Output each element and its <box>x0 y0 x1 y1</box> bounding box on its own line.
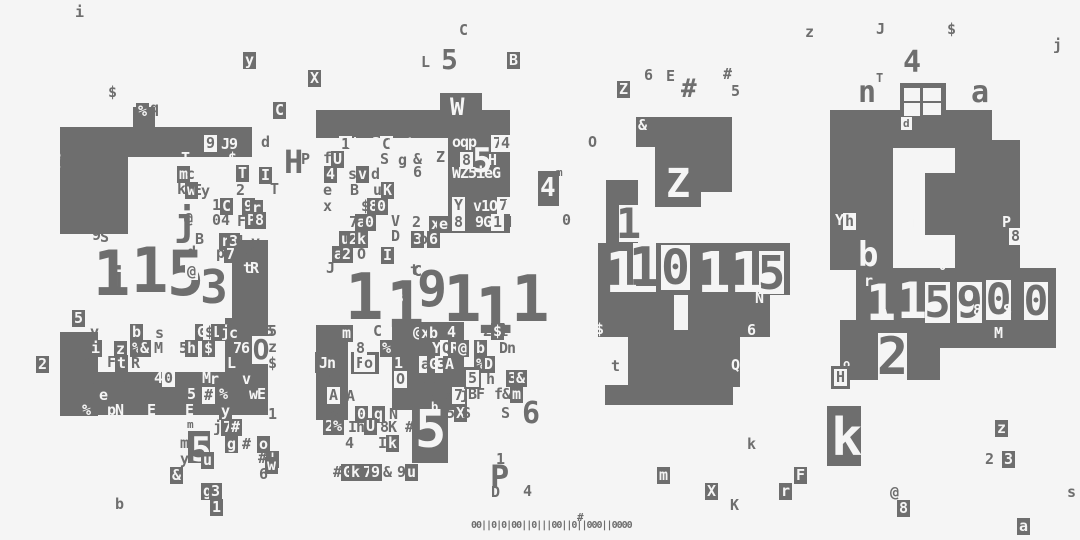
noise-char: C <box>413 264 422 279</box>
noise-char: x <box>323 199 332 214</box>
noise-char: t <box>329 372 338 387</box>
noise-char: # <box>681 76 697 102</box>
noise-char: 2 <box>340 246 353 263</box>
noise-char: w <box>265 457 278 474</box>
noise-char: 6 <box>747 323 756 338</box>
noise-char: 1 <box>443 371 452 386</box>
noise-char: % <box>380 340 393 357</box>
noise-char: 5 <box>268 324 277 339</box>
noise-char: K <box>388 420 397 435</box>
digit-box: 2 <box>878 333 907 381</box>
digit-box: 3 <box>202 266 226 308</box>
noise-char: k <box>831 412 862 464</box>
noise-char: 1 <box>697 246 731 302</box>
noise-char: 1 <box>210 499 223 516</box>
noise-char: 1 <box>345 266 384 330</box>
noise-char: 1 <box>511 268 550 332</box>
noise-char: x <box>842 293 851 308</box>
noise-char: F <box>794 467 807 484</box>
noise-char: 6 <box>241 341 250 356</box>
noise-char: v <box>52 163 61 178</box>
noise-char: $ <box>202 340 215 357</box>
noise-char: q <box>150 101 159 116</box>
noise-char: @ <box>185 263 198 280</box>
noise-char: $ <box>947 22 956 37</box>
noise-char: c <box>186 167 195 182</box>
noise-char: d <box>187 245 196 260</box>
noise-char: & <box>170 467 183 484</box>
noise-char: j <box>1053 38 1062 53</box>
noise-char: d <box>403 137 412 152</box>
noise-char: 0 <box>562 213 571 228</box>
noise-char: y <box>180 452 189 467</box>
noise-char: @ <box>890 485 899 500</box>
noise-char: T <box>181 151 190 166</box>
noise-char: $ <box>108 85 117 100</box>
noise-char: & <box>122 372 131 387</box>
noise-char: 6 <box>522 399 540 429</box>
digit-box: 0 <box>1024 282 1048 320</box>
noise-char: E <box>185 403 194 418</box>
noise-char: C <box>373 324 382 339</box>
noise-char: J <box>326 261 335 276</box>
noise-char: A <box>346 389 355 404</box>
noise-char: G <box>492 166 501 181</box>
noise-char: g <box>225 436 238 453</box>
noise-char: Z <box>666 164 690 204</box>
noise-char: @ <box>456 340 469 357</box>
noise-char: U <box>505 199 514 214</box>
noise-char: Z <box>617 81 630 98</box>
noise-char: d <box>901 117 912 130</box>
noise-char: 4 <box>499 135 512 152</box>
glyph-block <box>700 117 732 192</box>
glyph-block <box>60 127 128 234</box>
noise-char: D <box>391 229 400 244</box>
noise-char: m <box>657 467 670 484</box>
glyph-block <box>925 173 955 235</box>
glyph-block <box>605 385 733 405</box>
noise-char: 8 <box>1009 228 1022 245</box>
noise-char: 2 <box>36 356 49 373</box>
noise-char: b <box>858 238 878 272</box>
noise-char: 4 <box>221 213 230 228</box>
noise-char: W <box>347 136 356 151</box>
noise-char: 5 <box>187 387 196 402</box>
noise-char: 1 <box>897 276 927 326</box>
noise-char: F <box>476 387 485 402</box>
noise-char: y <box>201 184 210 199</box>
noise-char: N <box>404 341 413 356</box>
noise-char: 8 <box>973 303 982 318</box>
noise-char: 0 <box>212 213 221 228</box>
noise-char: m <box>556 167 563 178</box>
noise-char: o <box>362 355 375 372</box>
glyph-cutout <box>923 88 941 101</box>
noise-char: 1 <box>605 246 639 302</box>
noise-char: H <box>834 369 847 386</box>
noise-char: i <box>75 5 84 20</box>
noise-char: 2 <box>236 183 245 198</box>
noise-char: 2 <box>985 452 994 467</box>
noise-char: % <box>394 290 403 305</box>
noise-char: 0 <box>363 214 376 231</box>
noise-char: 6 <box>644 68 653 83</box>
noise-char: D <box>491 485 500 500</box>
noise-char: 7 <box>224 246 237 263</box>
noise-char: N <box>115 403 124 418</box>
noise-char: Q <box>731 358 740 373</box>
noise-char: K <box>730 498 739 513</box>
noise-char: B <box>507 52 520 69</box>
noise-char: X <box>308 70 321 87</box>
noise-char: X <box>427 373 436 388</box>
noise-char: 5 <box>731 84 740 99</box>
noise-char: $ <box>595 322 604 337</box>
glyph-block <box>955 140 1020 270</box>
barcode-row: 00||0|0|00||0|||00||0||000||0000 <box>471 521 632 531</box>
noise-char: y <box>243 52 256 69</box>
noise-char: L <box>227 356 236 371</box>
noise-char: 6 <box>427 231 440 248</box>
noise-char: S <box>501 406 510 421</box>
noise-char: k <box>386 435 399 452</box>
glyph-block <box>628 330 740 387</box>
noise-char: e <box>323 183 332 198</box>
noise-char: M <box>994 326 1003 341</box>
noise-char: P <box>248 244 257 259</box>
noise-char: W <box>450 95 464 119</box>
noise-char: a <box>204 402 213 417</box>
noise-char: A <box>880 308 889 323</box>
noise-char: R <box>131 356 140 371</box>
noise-char: u <box>405 464 418 481</box>
noise-char: W <box>403 183 412 198</box>
noise-char: 8 <box>452 214 465 231</box>
noise-char: u <box>201 452 214 469</box>
noise-char: C <box>459 23 468 38</box>
noise-char: T <box>876 72 883 84</box>
noise-char: L <box>421 55 430 70</box>
noise-char: J <box>876 22 885 37</box>
noise-char: Y <box>452 197 465 214</box>
noise-char: S <box>462 406 471 421</box>
noise-char: 4 <box>540 175 556 201</box>
noise-char: s <box>1067 485 1076 500</box>
noise-char: m <box>187 419 194 430</box>
noise-char: b <box>431 401 438 413</box>
noise-char: r <box>779 483 792 500</box>
glyph-cutout <box>904 103 920 116</box>
noise-char: z <box>995 420 1008 437</box>
noise-char: M <box>154 341 163 356</box>
noise-char: i <box>499 324 508 339</box>
noise-char: z <box>805 25 814 40</box>
noise-char: & <box>383 465 392 480</box>
noise-char: 0 <box>162 370 175 387</box>
noise-char: E <box>147 403 156 418</box>
noise-char: b <box>115 497 124 512</box>
glyph-cutout <box>904 88 920 101</box>
noise-char: r <box>420 341 429 356</box>
noise-char: O <box>571 355 593 391</box>
noise-char: m <box>340 325 353 342</box>
noise-char: A <box>327 387 340 404</box>
noise-char: 5 <box>441 46 458 74</box>
noise-char: b <box>179 355 188 370</box>
noise-char: P <box>301 152 310 167</box>
noise-char: n <box>507 341 516 356</box>
barcode-hash: # <box>577 512 584 523</box>
noise-char: 1 <box>131 240 168 302</box>
noise-char: 4 <box>523 484 532 499</box>
noise-char: @ <box>184 211 193 226</box>
noise-char: B <box>195 232 204 247</box>
noise-char: H <box>503 215 512 230</box>
noise-char: 9 <box>204 135 217 152</box>
noise-char: a <box>971 78 989 108</box>
noise-char: N <box>755 291 764 306</box>
noise-char: % <box>219 387 228 402</box>
noise-char: z <box>268 340 277 355</box>
noise-char: t <box>609 358 622 375</box>
noise-canvas: 00||0|0|00||0|||00||0||000||0000 # 3O911… <box>0 0 1080 540</box>
noise-char: # <box>405 420 414 435</box>
noise-char: B <box>350 183 359 198</box>
noise-char: m <box>180 436 189 451</box>
noise-char: R <box>250 261 259 276</box>
noise-char: 2 <box>412 215 421 230</box>
noise-char: 0 <box>939 260 946 272</box>
noise-char: 1 <box>268 407 277 422</box>
noise-char: E <box>666 69 675 84</box>
noise-char: 4 <box>903 48 921 78</box>
noise-char: 4 <box>345 436 354 451</box>
noise-char: U <box>364 418 377 435</box>
noise-char: 8 <box>897 500 910 517</box>
noise-char: n <box>912 215 921 230</box>
noise-char: # <box>723 67 732 82</box>
noise-char: r <box>425 190 432 202</box>
noise-char: r <box>864 274 873 289</box>
noise-char: T <box>236 165 249 182</box>
noise-char: 8 <box>253 212 266 229</box>
noise-char: X <box>705 483 718 500</box>
noise-char: w <box>388 136 397 151</box>
glyph-block <box>316 110 510 138</box>
noise-char: M <box>83 356 92 371</box>
noise-char: O <box>588 135 597 150</box>
noise-char: T <box>270 182 279 197</box>
noise-char: 1 <box>394 356 403 371</box>
noise-char: Z <box>436 150 445 165</box>
noise-char: J <box>403 199 412 214</box>
noise-char: % <box>331 418 344 435</box>
noise-char: d <box>371 167 380 182</box>
noise-char: S <box>380 152 389 167</box>
noise-char: 3 <box>1002 451 1015 468</box>
noise-char: a <box>1017 518 1030 535</box>
noise-char: r <box>210 372 219 387</box>
noise-char: E <box>257 387 266 402</box>
noise-char: # <box>242 437 251 452</box>
noise-char: k <box>747 437 756 452</box>
noise-char: 0 <box>107 372 116 387</box>
noise-char: C <box>273 102 286 119</box>
noise-char: d <box>261 135 270 150</box>
noise-char: 9 <box>369 464 382 481</box>
noise-char: $ <box>268 356 277 371</box>
digit-box: 5 <box>925 282 950 323</box>
noise-char: $ <box>228 151 237 166</box>
noise-char: % <box>136 103 149 120</box>
digit-box: 0 <box>661 245 690 290</box>
noise-char: O <box>357 247 366 262</box>
noise-char: 6 <box>91 372 100 387</box>
noise-char: y <box>90 325 99 340</box>
noise-char: S <box>100 230 109 245</box>
noise-char: # <box>229 419 242 436</box>
noise-char: n <box>858 78 876 108</box>
noise-char: % <box>82 403 91 418</box>
noise-char: g <box>398 153 407 168</box>
noise-char: S <box>1003 303 1012 318</box>
noise-char: & <box>638 118 647 133</box>
noise-char: j <box>110 265 126 291</box>
noise-char: Z <box>403 387 412 402</box>
noise-char: 5 <box>72 310 85 327</box>
noise-char: h <box>843 213 856 230</box>
noise-char: I <box>381 247 394 264</box>
glyph-cutout <box>923 103 941 115</box>
